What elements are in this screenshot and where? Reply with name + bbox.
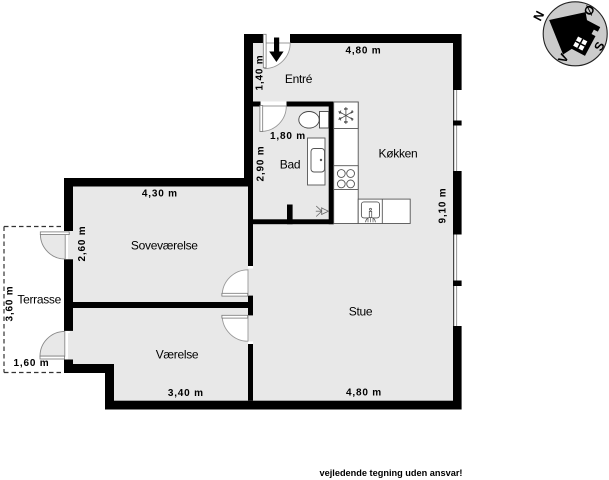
- svg-text:Soveværelse: Soveværelse: [131, 239, 198, 253]
- svg-text:Terrasse: Terrasse: [17, 293, 61, 307]
- svg-text:Køkken: Køkken: [379, 147, 418, 161]
- svg-text:2,60 m: 2,60 m: [77, 226, 88, 262]
- svg-text:1,60 m: 1,60 m: [14, 358, 50, 369]
- svg-text:Værelse: Værelse: [156, 348, 199, 362]
- svg-text:vejledende tegning uden ansvar: vejledende tegning uden ansvar!: [320, 468, 463, 478]
- svg-text:1,40 m: 1,40 m: [255, 55, 266, 91]
- svg-text:3,40 m: 3,40 m: [168, 388, 204, 399]
- svg-text:4,30 m: 4,30 m: [142, 189, 178, 200]
- svg-text:4,80 m: 4,80 m: [346, 388, 382, 399]
- svg-text:9,10 m: 9,10 m: [438, 188, 449, 224]
- svg-text:1,80 m: 1,80 m: [270, 131, 306, 142]
- svg-text:Entré: Entré: [285, 72, 313, 86]
- svg-text:Bad: Bad: [280, 157, 300, 171]
- svg-text:4,80 m: 4,80 m: [346, 45, 382, 56]
- svg-text:2,90 m: 2,90 m: [256, 146, 267, 182]
- svg-text:Stue: Stue: [349, 305, 373, 319]
- svg-text:3,60 m: 3,60 m: [5, 286, 16, 322]
